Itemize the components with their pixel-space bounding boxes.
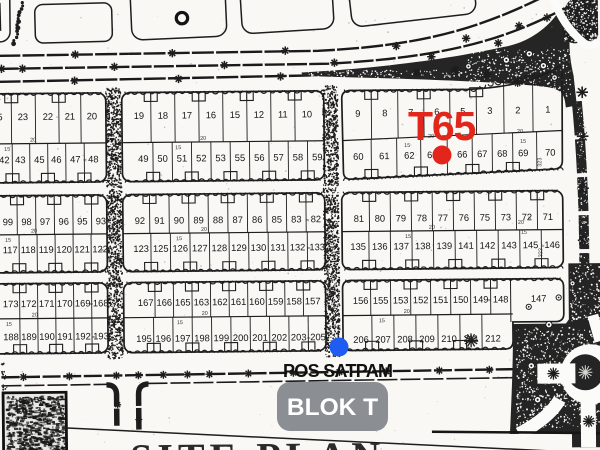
svg-text:92: 92 xyxy=(135,215,146,226)
svg-text:125: 125 xyxy=(153,243,169,254)
svg-text:20: 20 xyxy=(517,129,523,135)
svg-text:161: 161 xyxy=(231,296,247,307)
svg-text:205: 205 xyxy=(310,331,326,342)
svg-text:118: 118 xyxy=(21,244,36,255)
svg-text:10: 10 xyxy=(302,108,313,119)
svg-text:57: 57 xyxy=(273,152,284,163)
svg-text:47: 47 xyxy=(70,154,81,165)
svg-text:2: 2 xyxy=(515,104,520,115)
svg-text:85: 85 xyxy=(272,214,283,225)
svg-text:15: 15 xyxy=(5,238,11,244)
svg-text:147: 147 xyxy=(531,293,547,304)
svg-text:8: 8 xyxy=(382,107,387,118)
svg-text:171: 171 xyxy=(39,298,55,309)
svg-text:121: 121 xyxy=(74,243,90,254)
svg-text:93: 93 xyxy=(96,215,107,226)
svg-text:146: 146 xyxy=(544,239,560,250)
svg-text:209: 209 xyxy=(419,333,435,344)
svg-text:89: 89 xyxy=(193,214,204,225)
svg-text:22: 22 xyxy=(43,111,54,122)
svg-text:23: 23 xyxy=(18,111,29,122)
svg-text:95: 95 xyxy=(77,215,88,226)
svg-text:132: 132 xyxy=(290,241,306,252)
svg-text:88: 88 xyxy=(213,214,224,225)
svg-text:56: 56 xyxy=(254,152,265,163)
svg-text:152: 152 xyxy=(413,294,429,305)
svg-text:15: 15 xyxy=(177,320,183,326)
svg-text:50: 50 xyxy=(157,153,168,164)
svg-text:15: 15 xyxy=(520,139,526,145)
svg-text:16: 16 xyxy=(206,109,217,120)
svg-text:83: 83 xyxy=(291,213,302,224)
svg-text:148: 148 xyxy=(493,293,509,304)
svg-text:80: 80 xyxy=(375,213,386,224)
svg-text:159: 159 xyxy=(268,296,284,307)
svg-text:20: 20 xyxy=(404,309,410,315)
svg-text:193: 193 xyxy=(93,330,109,341)
svg-text:15: 15 xyxy=(405,234,411,240)
svg-text:82: 82 xyxy=(311,213,322,224)
svg-text:169: 169 xyxy=(75,297,91,308)
svg-text:172: 172 xyxy=(21,298,37,309)
svg-text:15: 15 xyxy=(175,145,181,151)
svg-text:12: 12 xyxy=(254,109,265,120)
svg-text:96: 96 xyxy=(58,216,69,227)
svg-text:151: 151 xyxy=(433,294,449,305)
svg-text:19: 19 xyxy=(134,110,145,121)
svg-text:212: 212 xyxy=(485,332,501,343)
svg-text:197: 197 xyxy=(175,332,191,343)
svg-text:131: 131 xyxy=(270,242,286,253)
svg-text:20: 20 xyxy=(87,110,98,121)
svg-text:77: 77 xyxy=(438,212,449,223)
svg-text:17: 17 xyxy=(182,109,193,120)
svg-text:168: 168 xyxy=(93,297,109,308)
svg-text:199: 199 xyxy=(213,332,229,343)
svg-text:20: 20 xyxy=(31,229,37,235)
svg-text:86: 86 xyxy=(252,214,263,225)
svg-text:68: 68 xyxy=(497,148,508,159)
svg-text:20: 20 xyxy=(30,138,36,144)
svg-text:137: 137 xyxy=(393,240,409,251)
svg-text:73: 73 xyxy=(501,211,512,222)
svg-text:15: 15 xyxy=(176,236,182,242)
svg-text:49: 49 xyxy=(138,153,149,164)
svg-text:15: 15 xyxy=(379,318,385,324)
svg-text:156: 156 xyxy=(353,295,369,306)
svg-text:167: 167 xyxy=(138,297,154,308)
svg-text:18: 18 xyxy=(158,110,169,121)
svg-text:58: 58 xyxy=(293,151,304,162)
svg-text:190: 190 xyxy=(39,331,55,342)
svg-text:153: 153 xyxy=(393,294,409,305)
svg-text:61: 61 xyxy=(379,150,390,161)
svg-text:163: 163 xyxy=(194,296,210,307)
svg-text:97: 97 xyxy=(40,216,51,227)
svg-text:210: 210 xyxy=(441,333,457,344)
svg-text:191: 191 xyxy=(57,331,73,342)
svg-text:51: 51 xyxy=(177,152,188,163)
svg-text:20: 20 xyxy=(202,311,208,317)
svg-text:69: 69 xyxy=(518,147,529,158)
svg-text:150: 150 xyxy=(453,294,469,305)
svg-text:60: 60 xyxy=(353,151,364,162)
svg-text:189: 189 xyxy=(21,331,37,342)
svg-text:198: 198 xyxy=(194,332,210,343)
svg-text:62: 62 xyxy=(404,150,415,161)
svg-text:162: 162 xyxy=(212,296,228,307)
svg-text:71: 71 xyxy=(543,211,554,222)
svg-text:52: 52 xyxy=(196,152,207,163)
svg-text:11: 11 xyxy=(278,109,288,120)
svg-text:15: 15 xyxy=(521,230,527,236)
svg-text:20: 20 xyxy=(201,227,207,233)
svg-text:323: 323 xyxy=(537,158,543,167)
svg-text:127: 127 xyxy=(192,242,208,253)
svg-text:192: 192 xyxy=(75,330,91,341)
svg-text:143: 143 xyxy=(501,239,517,250)
svg-text:46: 46 xyxy=(51,154,62,165)
svg-text:20: 20 xyxy=(518,220,524,226)
svg-text:200: 200 xyxy=(233,332,249,343)
svg-text:158: 158 xyxy=(286,295,302,306)
svg-text:149: 149 xyxy=(473,294,489,305)
svg-text:42: 42 xyxy=(0,154,10,165)
svg-text:76: 76 xyxy=(459,212,470,223)
svg-text:126: 126 xyxy=(172,242,188,253)
svg-text:166: 166 xyxy=(156,297,172,308)
svg-text:75: 75 xyxy=(480,212,491,223)
svg-text:155: 155 xyxy=(373,295,389,306)
svg-text:141: 141 xyxy=(458,240,474,251)
svg-text:195: 195 xyxy=(136,333,152,344)
svg-text:79: 79 xyxy=(396,212,407,223)
svg-text:173: 173 xyxy=(3,298,19,309)
svg-text:201: 201 xyxy=(252,332,268,343)
svg-text:55: 55 xyxy=(235,152,246,163)
svg-text:138: 138 xyxy=(415,240,431,251)
svg-text:145: 145 xyxy=(523,239,539,250)
svg-text:170: 170 xyxy=(57,298,73,309)
svg-text:128: 128 xyxy=(211,242,227,253)
svg-text:15: 15 xyxy=(230,109,241,120)
svg-text:90: 90 xyxy=(174,215,185,226)
svg-text:196: 196 xyxy=(155,333,171,344)
svg-text:45: 45 xyxy=(34,154,45,165)
svg-text:1: 1 xyxy=(545,104,550,115)
svg-text:160: 160 xyxy=(249,296,265,307)
svg-text:98: 98 xyxy=(21,216,32,227)
svg-text:48: 48 xyxy=(88,153,99,164)
svg-text:208: 208 xyxy=(397,333,413,344)
svg-text:53: 53 xyxy=(215,152,226,163)
svg-text:123: 123 xyxy=(133,243,149,254)
svg-text:207: 207 xyxy=(375,334,391,345)
svg-text:135: 135 xyxy=(350,241,366,252)
svg-text:67: 67 xyxy=(477,148,488,159)
svg-text:59: 59 xyxy=(312,151,323,162)
svg-text:81: 81 xyxy=(354,213,365,224)
svg-text:15: 15 xyxy=(6,322,12,328)
svg-text:129: 129 xyxy=(231,242,247,253)
svg-text:206: 206 xyxy=(353,334,369,345)
svg-text:165: 165 xyxy=(175,296,191,307)
svg-text:66: 66 xyxy=(457,148,468,159)
svg-text:91: 91 xyxy=(154,215,165,226)
svg-text:136: 136 xyxy=(372,241,388,252)
svg-text:142: 142 xyxy=(480,240,496,251)
svg-text:15: 15 xyxy=(4,147,10,153)
svg-text:87: 87 xyxy=(232,214,243,225)
svg-text:202: 202 xyxy=(271,332,287,343)
svg-text:78: 78 xyxy=(417,212,428,223)
svg-text:117: 117 xyxy=(3,244,18,255)
svg-text:139: 139 xyxy=(436,240,452,251)
svg-text:3: 3 xyxy=(487,105,492,116)
svg-text:21: 21 xyxy=(65,111,76,122)
svg-text:99: 99 xyxy=(3,216,14,227)
svg-text:120: 120 xyxy=(56,244,72,255)
svg-text:20: 20 xyxy=(32,313,38,319)
svg-text:43: 43 xyxy=(15,154,26,165)
svg-text:130: 130 xyxy=(251,242,267,253)
svg-text:119: 119 xyxy=(39,244,54,255)
svg-text:5: 5 xyxy=(0,111,3,122)
svg-text:188: 188 xyxy=(3,331,19,342)
svg-text:20: 20 xyxy=(200,136,206,142)
svg-text:70: 70 xyxy=(545,147,556,158)
svg-text:20: 20 xyxy=(429,225,435,231)
svg-text:203: 203 xyxy=(291,331,307,342)
svg-text:133: 133 xyxy=(309,241,325,252)
